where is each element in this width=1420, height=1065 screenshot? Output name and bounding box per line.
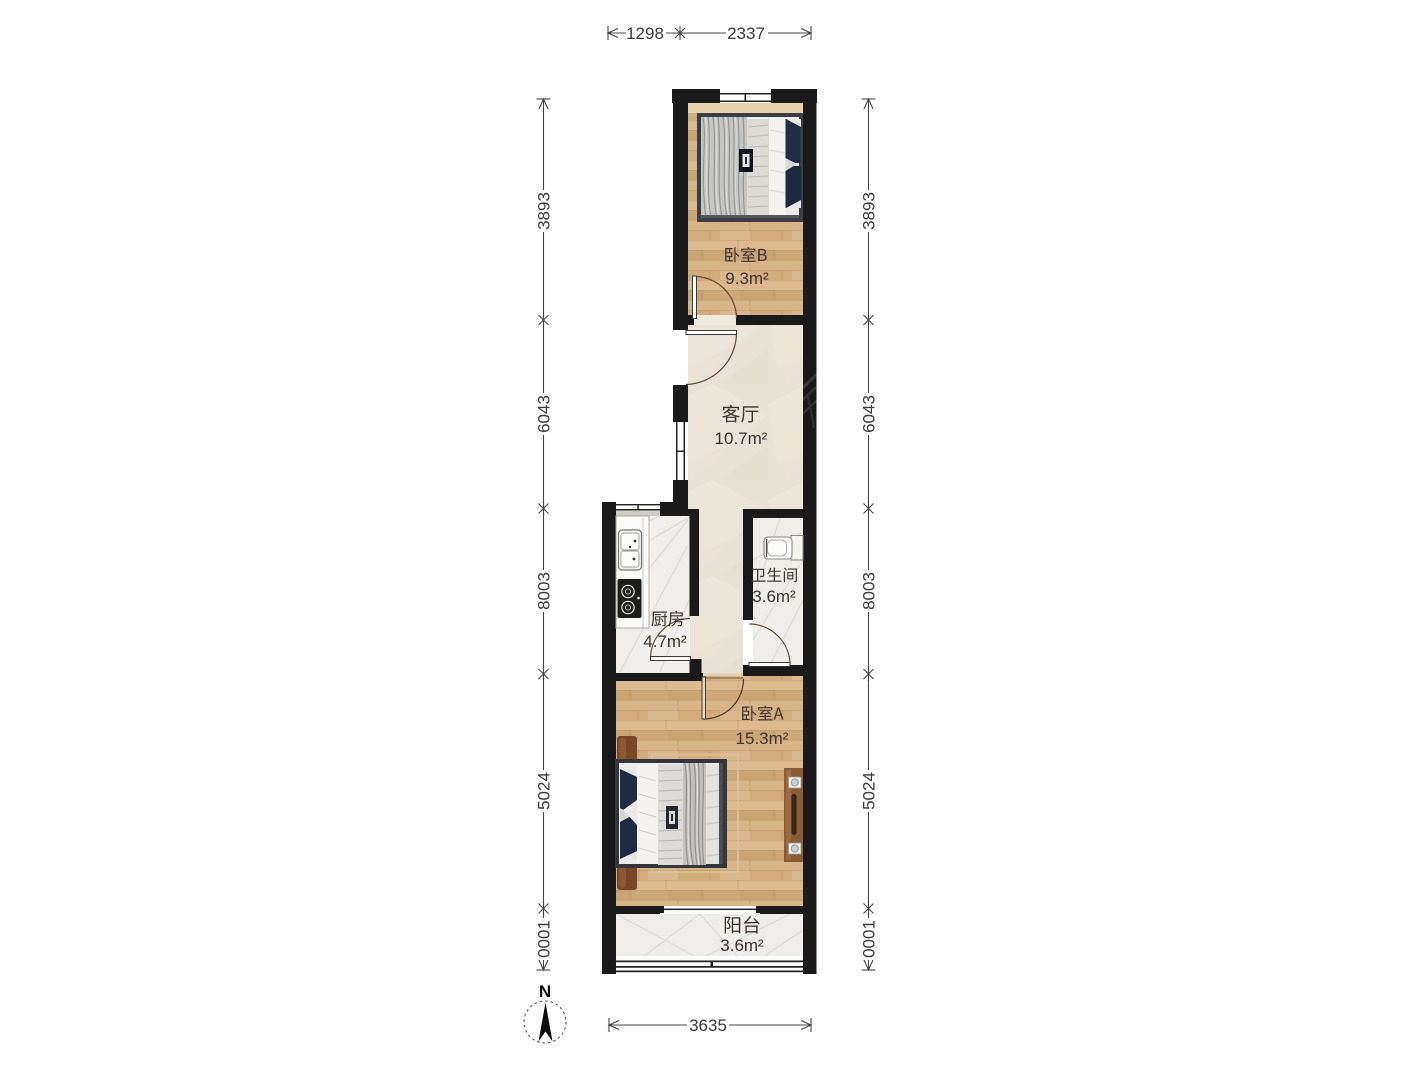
svg-text:0001: 0001 xyxy=(535,920,554,958)
svg-text:3635: 3635 xyxy=(689,1016,727,1035)
svg-text:6043: 6043 xyxy=(535,395,554,433)
svg-text:3893: 3893 xyxy=(535,192,554,230)
svg-text:6043: 6043 xyxy=(860,395,879,433)
svg-text:8003: 8003 xyxy=(860,572,879,610)
svg-text:3.6m²: 3.6m² xyxy=(752,587,796,606)
svg-text:10.7m²: 10.7m² xyxy=(715,429,768,448)
svg-text:1298: 1298 xyxy=(626,24,664,43)
svg-text:0001: 0001 xyxy=(860,920,879,958)
svg-text:N: N xyxy=(539,982,551,1001)
svg-text:5024: 5024 xyxy=(535,772,554,810)
svg-text:3.6m²: 3.6m² xyxy=(720,936,764,955)
svg-text:5024: 5024 xyxy=(860,772,879,810)
svg-text:15.3m²: 15.3m² xyxy=(736,729,789,748)
svg-text:3893: 3893 xyxy=(860,192,879,230)
svg-text:2337: 2337 xyxy=(727,24,765,43)
svg-text:4.7m²: 4.7m² xyxy=(643,632,687,651)
svg-text:9.3m²: 9.3m² xyxy=(725,269,769,288)
svg-text:8003: 8003 xyxy=(535,572,554,610)
